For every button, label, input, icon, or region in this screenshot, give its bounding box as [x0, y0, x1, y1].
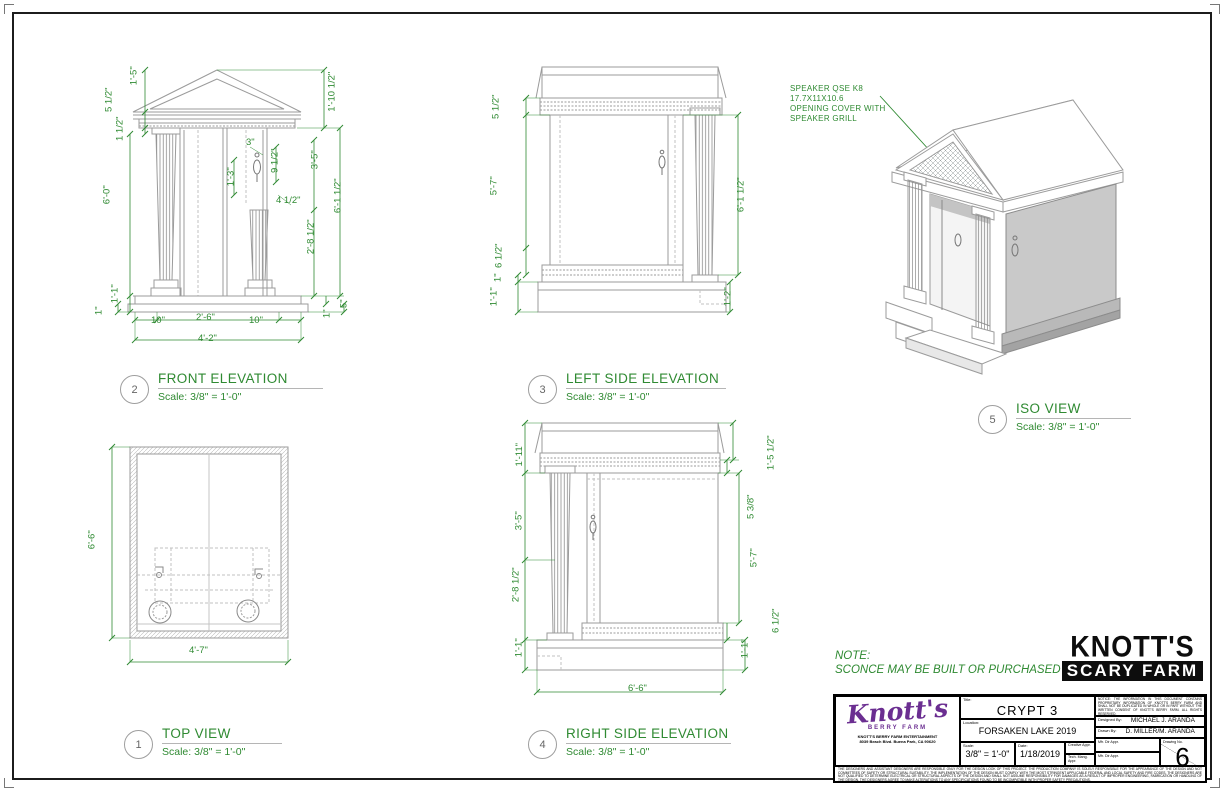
scale-value: 3/8" = 1'-0" — [961, 749, 1014, 759]
dim-label: 6'-6" — [88, 530, 98, 549]
dim-label: 4'-2" — [198, 334, 217, 344]
dim-label: 1'-1" — [490, 287, 500, 306]
creative-approval-label: Creative Appr. — [1066, 743, 1094, 748]
view-label-front: 2 FRONT ELEVATION Scale: 3/8" = 1'-0" — [120, 371, 323, 404]
dim-label: 5 1/2" — [105, 87, 115, 112]
dim-label: 1" — [323, 309, 333, 318]
view-title: LEFT SIDE ELEVATION — [566, 371, 726, 389]
dim-label: 1'-2" — [724, 287, 734, 306]
company-address-line2: 8039 Beach Blvd. Buena Park, CA 90620 — [836, 740, 959, 745]
view-scale: Scale: 3/8" = 1'-0" — [1016, 421, 1131, 433]
speaker-callout-line: OPENING COVER WITH — [790, 104, 886, 114]
dim-label: 1'-1" — [111, 284, 121, 303]
creative-approval-cell: Creative Appr. — [1065, 742, 1095, 754]
view-label-leftside: 3 LEFT SIDE ELEVATION Scale: 3/8" = 1'-0… — [528, 371, 726, 404]
dim-label: 1'-11" — [515, 443, 525, 467]
dim-label: 6'-6" — [628, 684, 647, 694]
notice-cell: NOTICE: THE INFORMATION IN THIS DOCUMENT… — [1095, 696, 1205, 716]
note-heading: NOTE: — [835, 650, 1061, 662]
corner-mark — [1210, 778, 1220, 788]
drawing-title: CRYPT 3 — [961, 703, 1094, 718]
dim-label: 5'-7" — [750, 548, 760, 567]
view-number-bubble: 1 — [124, 730, 153, 759]
title-label: Title: — [961, 697, 1094, 702]
drawn-by-cell: Drawn By: D. MILLER/M. ARANDA — [1095, 727, 1205, 738]
dim-label: 2'-8 1/2" — [307, 219, 317, 254]
dim-label: 1" — [95, 306, 105, 315]
dim-label: 2'-6" — [196, 313, 215, 323]
view-number-bubble: 5 — [978, 405, 1007, 434]
drawn-by-label: Drawn By: — [1096, 728, 1116, 733]
drawing-number-value: 6 — [1161, 744, 1204, 766]
view-number-bubble: 3 — [528, 375, 557, 404]
dim-label: 10" — [151, 316, 165, 326]
dim-label: 1 1/2" — [116, 116, 126, 141]
mfr-approval-label-2: Mfr. Dir Appr. — [1096, 753, 1159, 758]
dim-label: 4'-7" — [189, 646, 208, 656]
top-view-drawing — [85, 435, 315, 695]
dim-label: 1" — [494, 273, 504, 282]
speaker-callout-line: SPEAKER QSE K8 — [790, 84, 886, 94]
iso-view-drawing — [878, 88, 1140, 398]
view-label-top: 1 TOP VIEW Scale: 3/8" = 1'-0" — [124, 726, 282, 759]
knotts-scary-farm-logo: KNOTT'S SCARY FARM — [1060, 634, 1205, 681]
dim-label: 3'-5" — [515, 511, 525, 530]
right-side-elevation-drawing — [505, 415, 805, 715]
dim-label: 1'-1" — [741, 639, 751, 658]
view-scale: Scale: 3/8" = 1'-0" — [566, 746, 731, 758]
location-label: Location: — [961, 720, 1094, 725]
view-label-iso: 5 ISO VIEW Scale: 3/8" = 1'-0" — [978, 401, 1131, 434]
title-block: Knott's BERRY FARM KNOTT'S BERRY FARM EN… — [833, 694, 1207, 783]
designed-by-cell: Designed By: MICHAEL J. ARANDA — [1095, 716, 1205, 727]
left-side-elevation-drawing — [480, 48, 810, 368]
dim-label: 6'-1 1/2" — [737, 177, 747, 212]
dim-label: 5 3/8" — [747, 494, 757, 519]
dim-label: 10" — [249, 316, 263, 326]
company-logo-cell: Knott's BERRY FARM KNOTT'S BERRY FARM EN… — [835, 696, 960, 766]
tech-approval-label: Tech. Mang. Appr. — [1066, 755, 1094, 764]
scale-cell: Scale: 3/8" = 1'-0" — [960, 742, 1015, 766]
location-value: FORSAKEN LAKE 2019 — [961, 726, 1094, 736]
mfr-approval-label-1: Mfr. Dir Appr. — [1096, 739, 1159, 744]
location-cell: Location: FORSAKEN LAKE 2019 — [960, 719, 1095, 742]
date-label: Date: — [1016, 743, 1064, 748]
view-label-rightside: 4 RIGHT SIDE ELEVATION Scale: 3/8" = 1'-… — [528, 726, 731, 759]
view-title: ISO VIEW — [1016, 401, 1131, 419]
dim-label: 2'-8 1/2" — [512, 567, 522, 602]
corner-mark — [1210, 4, 1220, 14]
sconce-note: NOTE: SCONCE MAY BE BUILT OR PURCHASED — [835, 650, 1061, 676]
scary-logo-line2: SCARY FARM — [1062, 661, 1203, 681]
dim-label: 4 1/2" — [276, 196, 301, 206]
corner-mark — [4, 778, 14, 788]
mfr-approval-cell-1: Mfr. Dir Appr. — [1095, 738, 1160, 752]
view-scale: Scale: 3/8" = 1'-0" — [162, 746, 282, 758]
dim-label: 6 1/2" — [495, 243, 505, 268]
designed-by-label: Designed By: — [1096, 717, 1122, 722]
view-title: TOP VIEW — [162, 726, 282, 744]
disclaimer-text: THE DESIGNERS AND ASSISTANT DESIGNERS AR… — [835, 766, 1205, 781]
note-body: SCONCE MAY BE BUILT OR PURCHASED — [835, 664, 1061, 676]
tech-approval-cell: Tech. Mang. Appr. — [1065, 754, 1095, 766]
dim-label: 5'-7" — [490, 176, 500, 195]
dim-label: 6'-1 1/2" — [334, 178, 344, 213]
scary-logo-line1: KNOTT'S — [1060, 633, 1205, 661]
dim-label: 6 1/2" — [772, 608, 782, 633]
view-number-bubble: 2 — [120, 375, 149, 404]
dim-label: 1'-10 1/2" — [327, 72, 337, 112]
speaker-callout: SPEAKER QSE K8 17.7X11X10.6 OPENING COVE… — [790, 84, 886, 124]
dim-label: 5 1/2" — [492, 94, 502, 119]
date-value: 1/18/2019 — [1016, 749, 1064, 759]
corner-mark — [4, 4, 14, 14]
dim-label: 3'-5" — [311, 150, 321, 169]
dim-label: 1'-5" — [130, 66, 140, 85]
dim-label: 3" — [246, 138, 255, 148]
view-title: FRONT ELEVATION — [158, 371, 323, 389]
scale-label: Scale: — [961, 743, 1014, 748]
dim-label: 1'-1" — [515, 638, 525, 657]
speaker-callout-line: SPEAKER GRILL — [790, 114, 886, 124]
speaker-callout-line: 17.7X11X10.6 — [790, 94, 886, 104]
title-cell: Title: CRYPT 3 — [960, 696, 1095, 719]
dim-label: 1'-3" — [227, 167, 237, 186]
dim-label: 6'-0" — [103, 185, 113, 204]
dim-label: 1'-5 1/2" — [767, 435, 777, 470]
drawing-number-cell: Drawing No. 6 — [1160, 738, 1205, 766]
view-title: RIGHT SIDE ELEVATION — [566, 726, 731, 744]
view-number-bubble: 4 — [528, 730, 557, 759]
notice-text: NOTICE: THE INFORMATION IN THIS DOCUMENT… — [1096, 697, 1204, 716]
view-scale: Scale: 3/8" = 1'-0" — [566, 391, 726, 403]
drawing-sheet: 1'-5" 5 1/2" 1 1/2" 6'-0" 1'-1" 1" 1'-10… — [0, 0, 1224, 792]
date-cell: Date: 1/18/2019 — [1015, 742, 1065, 766]
view-scale: Scale: 3/8" = 1'-0" — [158, 391, 323, 403]
mfr-approval-cell-2: Mfr. Dir Appr. — [1095, 752, 1160, 766]
front-elevation-drawing — [88, 55, 408, 360]
dim-label: 9 1/2" — [271, 148, 281, 173]
dim-label: 5" — [340, 299, 350, 308]
